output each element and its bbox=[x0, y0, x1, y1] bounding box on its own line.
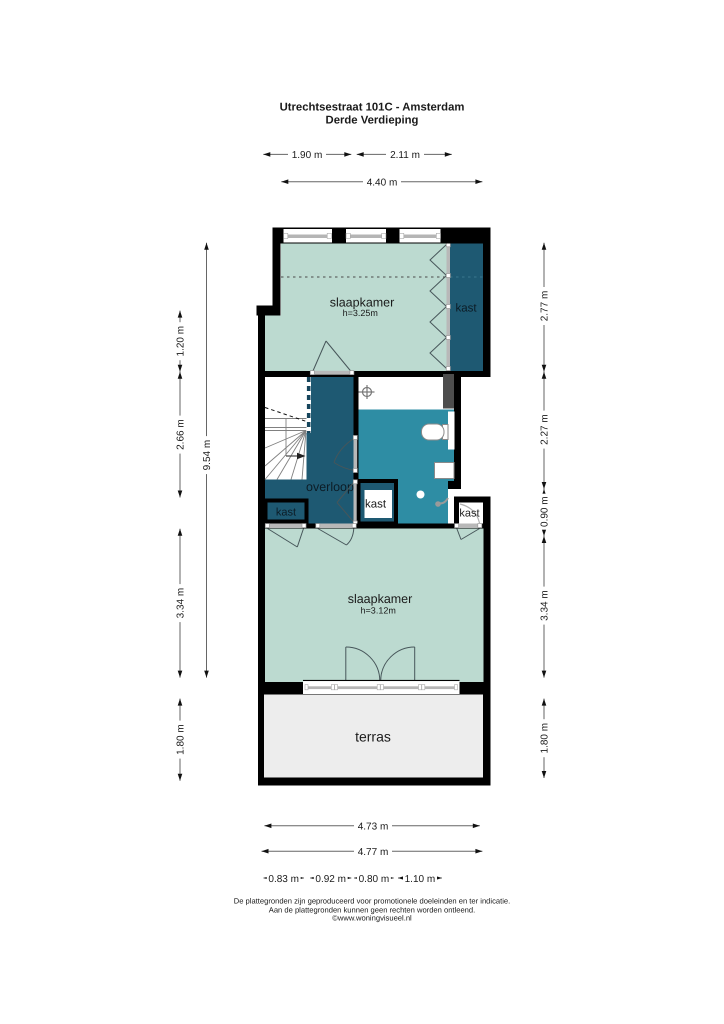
svg-text:kast: kast bbox=[455, 302, 477, 314]
svg-text:overloop: overloop bbox=[306, 480, 354, 494]
svg-text:h=3.12m: h=3.12m bbox=[361, 605, 396, 615]
svg-text:0.83 m: 0.83 m bbox=[268, 874, 299, 885]
svg-text:terras: terras bbox=[355, 729, 391, 745]
svg-text:Derde Verdieping: Derde Verdieping bbox=[326, 115, 419, 127]
svg-text:h=3.25m: h=3.25m bbox=[343, 308, 378, 318]
svg-text:0.92 m: 0.92 m bbox=[315, 874, 346, 885]
svg-text:0.80 m: 0.80 m bbox=[359, 874, 390, 885]
svg-text:4.77 m: 4.77 m bbox=[358, 847, 389, 858]
svg-text:kast: kast bbox=[276, 507, 296, 519]
svg-text:Utrechtsestraat 101C - Amsterd: Utrechtsestraat 101C - Amsterdam bbox=[280, 102, 465, 114]
svg-text:3.34 m: 3.34 m bbox=[540, 590, 551, 621]
svg-text:1.10 m: 1.10 m bbox=[405, 874, 436, 885]
svg-text:1.80 m: 1.80 m bbox=[540, 723, 551, 754]
svg-text:2.27 m: 2.27 m bbox=[540, 414, 551, 445]
svg-text:1.90 m: 1.90 m bbox=[292, 150, 323, 161]
svg-text:slaapkamer: slaapkamer bbox=[348, 592, 413, 606]
svg-text:4.73 m: 4.73 m bbox=[358, 822, 389, 833]
svg-text:3.34 m: 3.34 m bbox=[176, 588, 187, 619]
svg-text:9.54 m: 9.54 m bbox=[202, 440, 213, 471]
svg-text:kast: kast bbox=[459, 508, 479, 520]
svg-text:2.11 m: 2.11 m bbox=[390, 150, 420, 161]
svg-text:2.77 m: 2.77 m bbox=[540, 291, 551, 322]
svg-text:1.80 m: 1.80 m bbox=[176, 724, 187, 755]
svg-text:De plattegronden zijn geproduc: De plattegronden zijn geproduceerd voor … bbox=[234, 897, 511, 906]
svg-text:2.66 m: 2.66 m bbox=[176, 419, 187, 450]
svg-text:1.20 m: 1.20 m bbox=[176, 326, 187, 357]
svg-text:4.40 m: 4.40 m bbox=[367, 178, 398, 189]
svg-text:0.90 m: 0.90 m bbox=[540, 496, 551, 527]
svg-text:kast: kast bbox=[365, 499, 387, 511]
svg-text:©www.woningvisueel.nl: ©www.woningvisueel.nl bbox=[332, 914, 412, 923]
